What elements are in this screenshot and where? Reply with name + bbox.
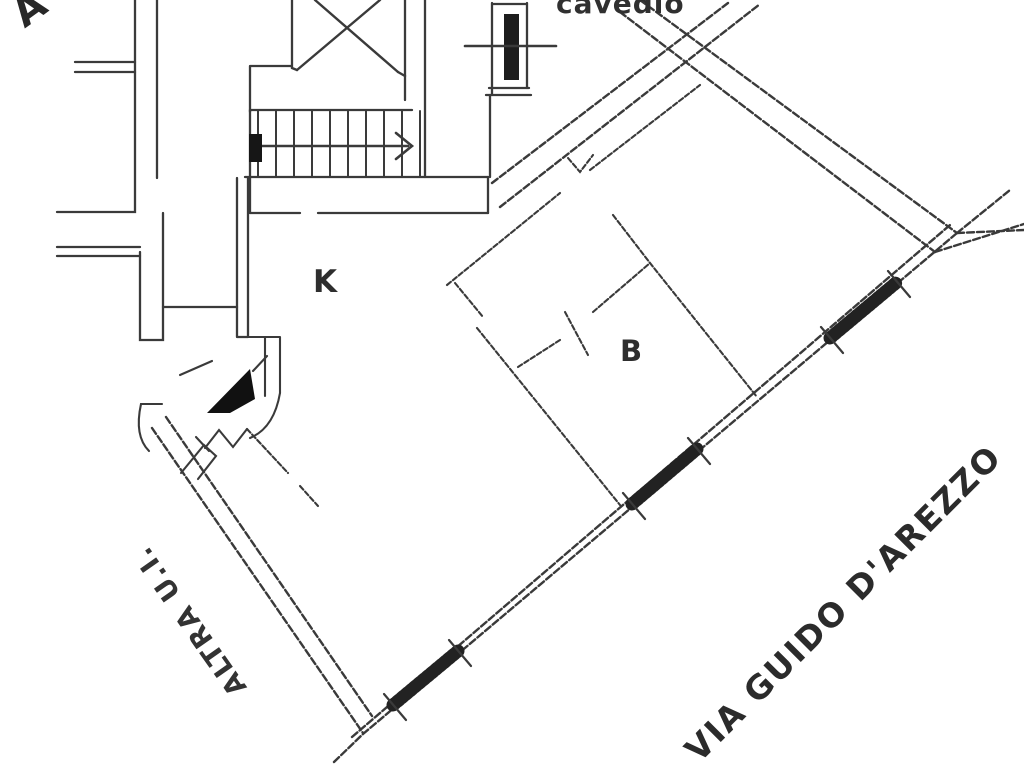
corridor-wall	[447, 85, 700, 285]
window-hatch-living	[393, 651, 458, 705]
kitchen-label: K	[313, 264, 337, 300]
floor-plan-page: A cavedio K B ALTRA U.I. VIA GUIDO D'ARE…	[0, 0, 1024, 768]
floor-plan-drawing	[0, 0, 1024, 768]
wall-tick	[75, 62, 135, 72]
broken-wall-zigzag	[205, 429, 247, 448]
bathroom-label: B	[620, 334, 642, 368]
wall	[57, 247, 140, 256]
nw-wall-inner	[500, 4, 760, 207]
sw-wall-inner	[166, 417, 372, 716]
ne-wall-outer	[640, 0, 957, 233]
entrance-black-arrow	[207, 369, 255, 413]
sw-wall-outer	[152, 428, 363, 733]
boundary-extension	[957, 230, 1024, 233]
entry-wall	[300, 486, 318, 506]
shaft-cavedio-label: cavedio	[556, 0, 685, 20]
entrance-area	[139, 337, 280, 479]
x-cross-shaft-room	[292, 0, 405, 76]
x-diagonal	[297, 0, 380, 70]
stair-treads	[258, 111, 420, 176]
door-leaf	[455, 283, 483, 317]
wall	[237, 178, 248, 337]
facade-windows	[384, 271, 910, 720]
partition-bath-bedroom	[613, 215, 757, 397]
boundary-extension	[935, 224, 1024, 252]
door-swing-arc	[250, 393, 280, 438]
flue-section	[465, 3, 556, 177]
wall	[57, 0, 135, 212]
common-stairwell-walls	[57, 0, 488, 340]
door-swing-arc	[139, 404, 162, 451]
wall	[250, 0, 292, 112]
x-diagonal	[315, 0, 398, 72]
stair-start-block	[249, 134, 262, 162]
ne-wall-inner	[620, 12, 935, 252]
wall	[140, 213, 163, 340]
bath-wall	[593, 263, 650, 312]
staircase	[249, 111, 420, 176]
partition-stub	[518, 340, 560, 367]
tick	[180, 361, 212, 375]
x-corner	[292, 68, 405, 76]
window-hatch-bedroom	[830, 282, 897, 338]
door-leaf	[565, 312, 588, 355]
window-hatch-middle	[632, 449, 697, 504]
apartment-outer-walls	[152, 0, 1024, 762]
partition-living-bath	[477, 328, 620, 505]
wall-notch	[181, 445, 216, 479]
boundary-extension	[957, 190, 1010, 233]
